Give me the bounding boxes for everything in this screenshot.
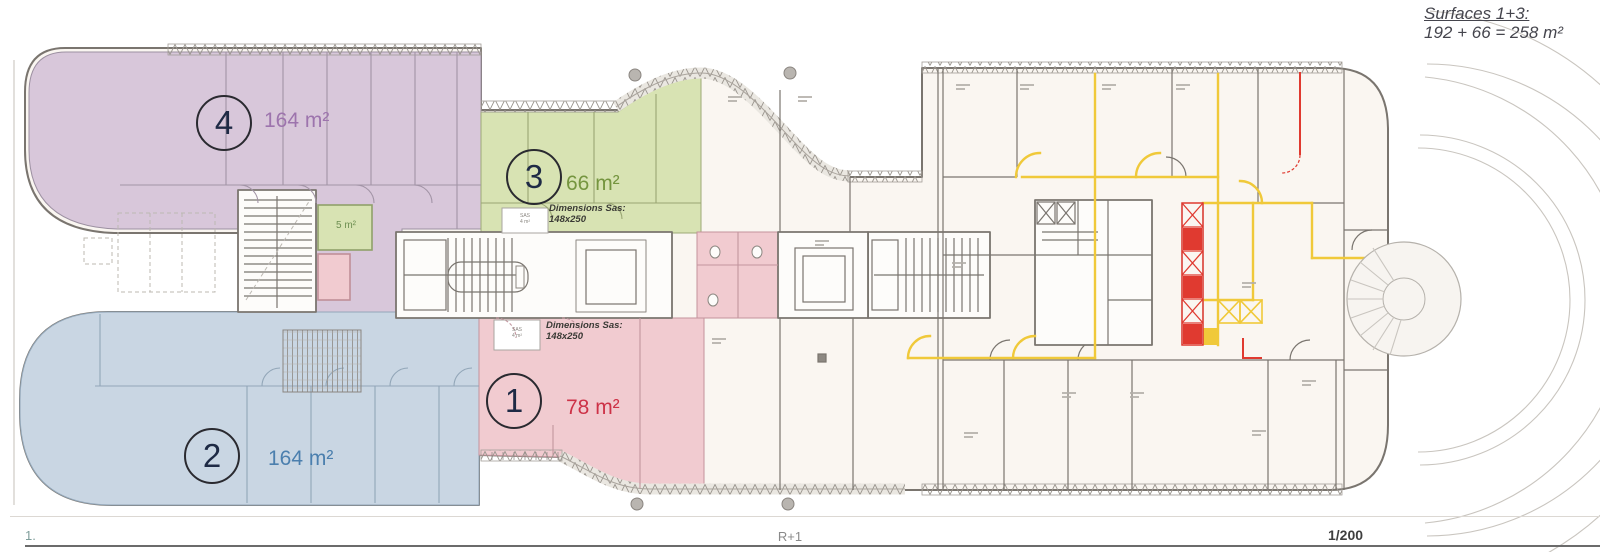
zone-2-number: 2 bbox=[203, 437, 221, 475]
sas-annotation-bottom: Dimensions Sas: 148x250 bbox=[546, 320, 623, 342]
zone-2-area-label: 164 m² bbox=[268, 447, 333, 471]
service-block bbox=[1035, 200, 1152, 345]
zone-4-badge: 4 bbox=[196, 95, 252, 151]
title-block: Surfaces 1+3: 192 + 66 = 258 m² bbox=[1424, 4, 1563, 42]
zone-1-number: 1 bbox=[505, 382, 523, 420]
sheet-number: 1. bbox=[25, 528, 36, 543]
title-line-2: 192 + 66 = 258 m² bbox=[1424, 23, 1563, 42]
spiral-ramp bbox=[1347, 242, 1461, 356]
sas-annotation-top-value: 148x250 bbox=[549, 214, 626, 225]
footer-rule bbox=[25, 545, 1600, 547]
sas-room-label-top: SAS 4 m² bbox=[506, 213, 544, 225]
zone-1-area-label: 78 m² bbox=[566, 396, 620, 420]
core-a bbox=[396, 232, 672, 318]
zone-3-number: 3 bbox=[525, 158, 543, 196]
sas-room-label-bottom: SAS 4 m² bbox=[498, 327, 536, 339]
sas-annotation-top: Dimensions Sas: 148x250 bbox=[549, 203, 626, 225]
sas-annotation-top-label: Dimensions Sas: bbox=[549, 203, 626, 214]
zone-1-badge: 1 bbox=[486, 373, 542, 429]
zone-3-area-label: 66 m² bbox=[566, 172, 620, 196]
small-room-area-label: 5 m² bbox=[326, 220, 366, 231]
zone-2-badge: 2 bbox=[184, 428, 240, 484]
sas-annotation-bottom-label: Dimensions Sas: bbox=[546, 320, 623, 331]
floor-plan-drawing bbox=[0, 0, 1600, 552]
zone-3-badge: 3 bbox=[506, 149, 562, 205]
title-line-1: Surfaces 1+3: bbox=[1424, 4, 1563, 23]
core-b bbox=[868, 232, 990, 318]
zone-2-region bbox=[20, 312, 479, 505]
small-pink-room bbox=[318, 254, 350, 300]
floor-plan-sheet: Surfaces 1+3: 192 + 66 = 258 m² 1 2 3 4 … bbox=[0, 0, 1600, 552]
level-label: R+1 bbox=[760, 529, 820, 544]
scale-label: 1/200 bbox=[1328, 527, 1398, 543]
stair-core-left bbox=[238, 190, 316, 312]
footer-hairline bbox=[10, 516, 1600, 517]
zone-4-number: 4 bbox=[215, 104, 233, 142]
sas-annotation-bottom-value: 148x250 bbox=[546, 331, 623, 342]
zone-4-area-label: 164 m² bbox=[264, 109, 329, 133]
